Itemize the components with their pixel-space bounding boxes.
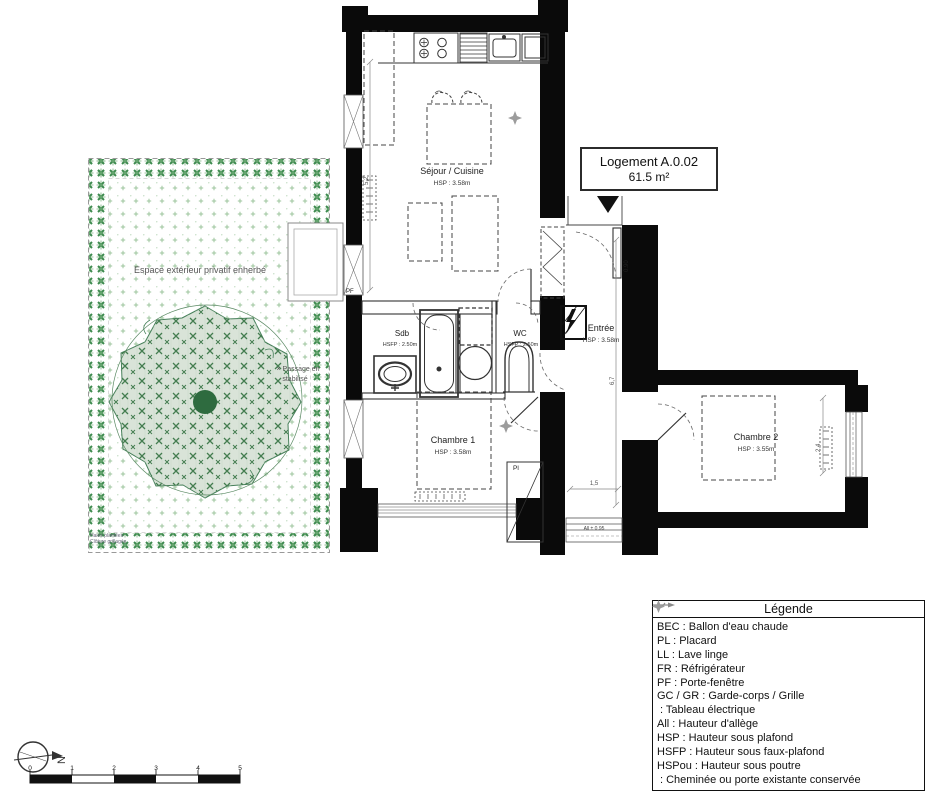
scale-tick: 1 [70,765,74,772]
kitchen-sink-icon [489,34,520,61]
four-point-star-icon [508,111,522,125]
north-letter: N [56,756,68,764]
room-label-wc: WC [513,330,526,339]
dishwasher-icon [460,33,487,63]
garden-passage-line2: stabilisé [282,376,307,384]
room-label-chambre1: Chambre 1 [431,436,476,446]
legend-item-cheminee: : Cheminée ou porte existante conservée [657,773,921,787]
pf-label: PF [346,289,354,296]
garden-title: Espace extérieur privatif enherbé [134,266,266,276]
legend-item: HSPou : Hauteur sous poutre [657,759,921,773]
room-height-entree: HSP : 3.58m [583,337,620,344]
sejour-furniture [363,31,498,271]
placard-sejour [364,31,394,145]
window-chambre1-left [344,400,363,458]
legend-item-tableau: : Tableau électrique [657,703,921,717]
room-label-entree: Entrée [588,324,615,334]
tree-trunk-icon [193,390,217,414]
washbasin-icon [374,356,416,393]
legend-item: BEC : Ballon d'eau chaude [657,620,921,634]
radiator-chambre1 [415,492,465,501]
window-sejour-1 [344,95,363,148]
scale-tick: 5 [238,765,242,772]
scale-tick: 2 [112,765,116,772]
scale-tick: 3 [154,765,158,772]
dim-corridor: 1,5 [590,481,598,488]
room-label-chambre2: Chambre 2 [734,433,779,443]
entrance-marker-triangle [597,196,619,213]
legend-title: Légende [652,600,925,618]
room-height-sejour: HSP : 3.58m [434,180,471,187]
toilet-icon [503,342,535,392]
scale-tick: 0 [28,765,32,772]
room-label-sejour: Séjour / Cuisine [420,167,484,177]
dim-entree: 6,7 [610,377,617,385]
dining-table [427,91,491,164]
room-height-wc: HSFP : 2.50m [504,342,538,348]
garden-area [89,159,344,553]
legend-box: Légende BEC : Ballon d'eau chaude PL : P… [652,600,925,791]
garden-hedge-band-right [311,159,329,551]
legend-item: PL : Placard [657,634,921,648]
title-box: Logement A.0.02 61.5 m² [580,147,718,191]
legend-item: All : Hauteur d'allège [657,717,921,731]
bathtub-icon [420,310,458,397]
legend-item: LL : Lave linge [657,648,921,662]
dim-sejour: 5,2 [364,177,371,185]
window-sejour-2-pf [344,245,363,295]
placard-label: Pl [513,465,519,472]
bathroom-fixtures [374,308,535,397]
room-height-chambre1: HSP : 3.58m [435,449,472,456]
stove-icon [414,33,458,63]
garden-hedge-band-top [89,159,329,178]
entrance-door [576,228,621,278]
unit-area: 61.5 m² [629,170,670,184]
floor-plan-page: Séjour / Cuisine HSP : 3.58m Sdb HSFP : … [0,0,928,800]
window-chambre2-right [846,412,862,477]
door-hall [540,353,565,390]
door-width-label: 0.90 [624,260,631,272]
scale-tick: 4 [196,765,200,772]
legend-item: HSP : Hauteur sous plafond [657,731,921,745]
room-label-sdb: Sdb [395,330,409,339]
allege-label: All ± 0.95 [584,527,605,533]
garden-passage-line1: × Passage en [276,366,319,374]
door-chambre2 [658,404,694,440]
walls [340,0,868,555]
room-height-sdb: HSFP : 2.50m [383,342,417,348]
legend-item: PF : Porte-fenêtre [657,676,921,690]
furniture-block-1 [408,203,442,261]
garden-hedge-line2: Clôture grillagée [90,540,126,546]
four-point-star-icon [499,419,513,433]
legend-item: GC / GR : Garde-corps / Grille [657,689,921,703]
kitchen-counter [378,33,548,63]
wardrobe-niche [541,227,564,298]
garden-hedge-band-left [89,159,108,551]
dim-chambre2: 2,4 [816,444,823,452]
legend-item: HSFP : Hauteur sous faux-plafond [657,745,921,759]
unit-name: Logement A.0.02 [600,154,698,169]
legend-item: FR : Réfrigérateur [657,662,921,676]
room-height-chambre2: HSP : 3.55m [738,446,775,453]
washing-machine-icon [459,308,493,380]
window-chambre1-bottom [378,504,516,517]
furniture-block-2 [452,196,498,271]
door-sejour [498,269,531,302]
preserved-feature-icons [499,111,522,433]
scale-bar [30,770,240,783]
porch-outline [288,223,343,301]
